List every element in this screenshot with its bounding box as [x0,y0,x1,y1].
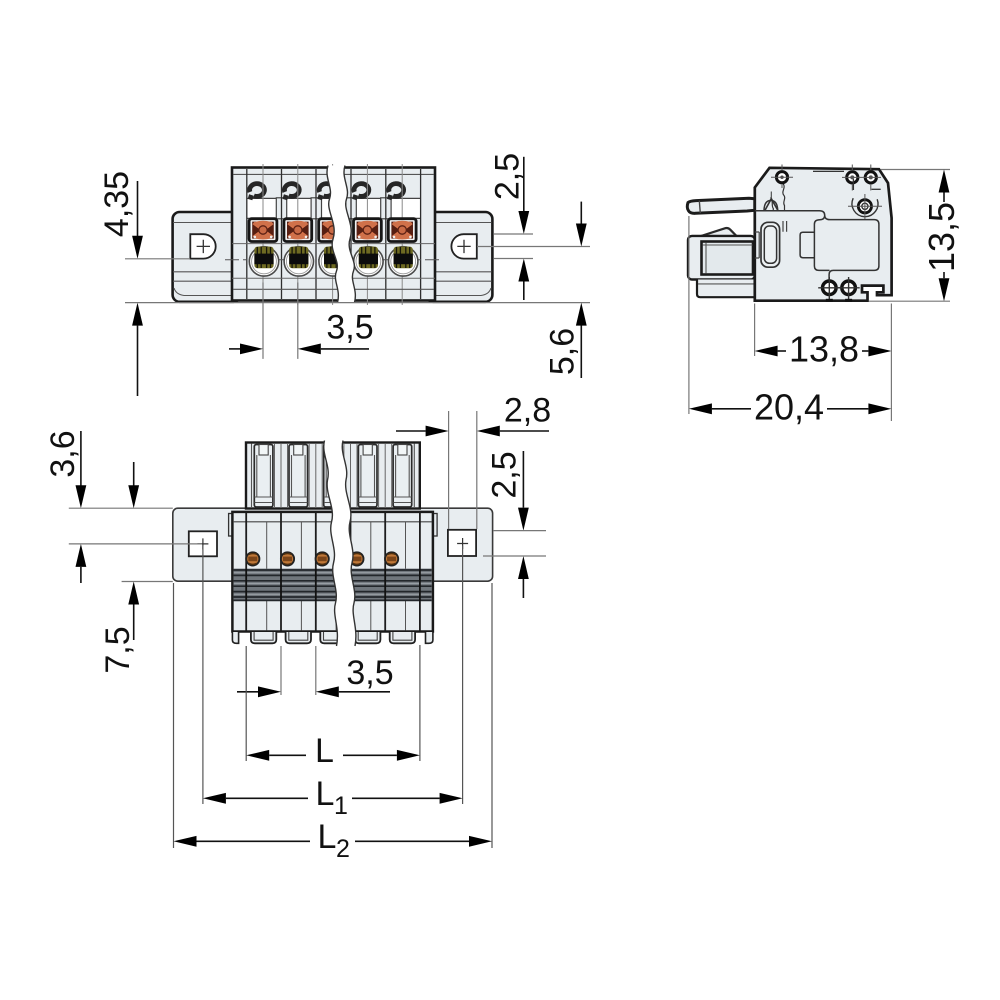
svg-text:13,5: 13,5 [921,202,962,272]
svg-text:1: 1 [334,792,348,820]
svg-text:3,6: 3,6 [44,430,82,477]
svg-text:20,4: 20,4 [754,387,824,428]
svg-text:2: 2 [336,835,350,863]
svg-text:L: L [318,818,337,856]
svg-text:2,8: 2,8 [504,392,551,430]
svg-text:13,8: 13,8 [789,329,859,370]
svg-text:3,5: 3,5 [346,654,393,692]
svg-text:5,6: 5,6 [544,328,582,375]
svg-text:2,5: 2,5 [489,153,527,200]
svg-text:4,35: 4,35 [98,171,136,237]
svg-text:7,5: 7,5 [99,626,137,673]
svg-text:L: L [316,775,335,813]
svg-text:2,5: 2,5 [486,451,524,498]
svg-text:L: L [315,732,334,770]
svg-text:3,5: 3,5 [326,309,373,347]
